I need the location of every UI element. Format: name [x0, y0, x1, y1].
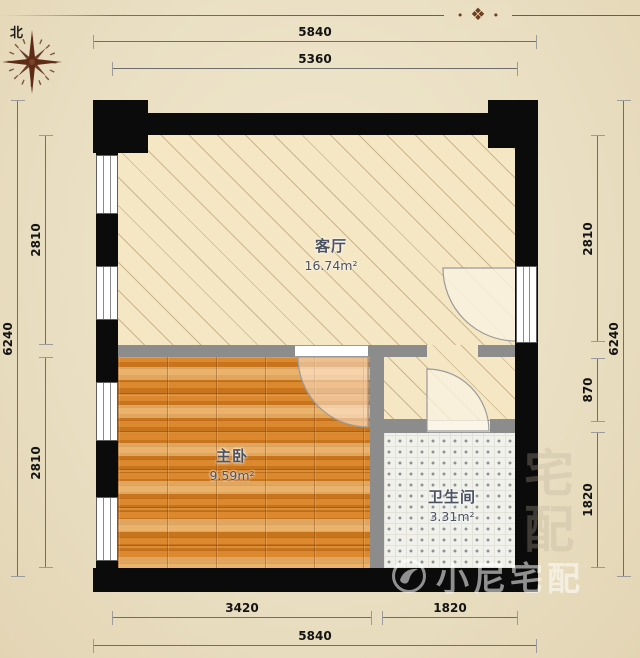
dim-value: 2810 — [29, 446, 43, 479]
dim-value: 6240 — [1, 322, 15, 355]
dim-bottom-bedroom: 3420 — [112, 617, 372, 618]
watermark-ghost: 宅配 — [524, 446, 588, 558]
room-area: 3.31m² — [402, 509, 502, 524]
watermark-text: 小尼宅配 — [436, 552, 584, 600]
interior-wall — [490, 419, 515, 433]
bedroom-label: 主卧 9.59m² — [182, 445, 282, 483]
ornament-dot-left: • — [457, 10, 464, 21]
window-icon — [96, 266, 118, 320]
room-name: 客厅 — [281, 235, 381, 256]
living-room-label: 客厅 16.74m² — [281, 235, 381, 273]
interior-wall — [478, 345, 515, 357]
dim-value: 5840 — [298, 629, 331, 643]
room-area: 9.59m² — [182, 468, 282, 483]
ornament-icon: • ❖ • — [444, 3, 512, 28]
top-border-line — [0, 15, 640, 16]
dim-left-outer: 6240 — [17, 100, 18, 577]
dim-right-middle: 870 — [597, 358, 598, 422]
dim-value: 5840 — [298, 25, 331, 39]
bathroom-door-threshold — [427, 420, 490, 433]
interior-wall — [370, 345, 384, 570]
room-area: 16.74m² — [281, 258, 381, 273]
dim-top-outer: 5840 — [93, 41, 537, 42]
dim-right-upper: 2810 — [597, 135, 598, 342]
dim-value: 6240 — [607, 322, 621, 355]
watermark-logo-icon — [390, 557, 428, 595]
exterior-wall-top — [148, 113, 488, 135]
dim-bottom-outer: 5840 — [93, 645, 537, 646]
room-name: 主卧 — [182, 445, 282, 466]
compass-rose-icon: 北 — [2, 24, 66, 94]
floorplan-page: • ❖ • 北 — [0, 0, 640, 658]
dim-value: 2810 — [581, 222, 595, 255]
room-name: 卫生间 — [402, 486, 502, 507]
dim-top-inner: 5360 — [112, 68, 518, 69]
dim-value: 870 — [581, 377, 595, 402]
dim-left-lower: 2810 — [45, 357, 46, 568]
ornament-dot-right: • — [493, 10, 500, 21]
dim-left-upper: 2810 — [45, 135, 46, 345]
dim-value: 3420 — [225, 601, 258, 615]
interior-wall — [384, 419, 427, 433]
window-icon — [96, 155, 118, 214]
corridor-floor — [372, 345, 517, 425]
corner-column — [93, 100, 148, 153]
dim-bottom-bathroom: 1820 — [382, 617, 518, 618]
dim-value: 1820 — [433, 601, 466, 615]
corner-column — [488, 100, 538, 148]
dim-right-outer: 6240 — [623, 100, 624, 577]
window-icon — [96, 497, 118, 561]
window-icon — [96, 382, 118, 441]
dim-right-lower: 1820 — [597, 432, 598, 568]
dim-value: 2810 — [29, 223, 43, 256]
interior-wall — [112, 345, 295, 357]
watermark: 小尼宅配 — [390, 552, 584, 600]
entry-door-leaf-icon — [516, 266, 537, 343]
north-label: 北 — [10, 22, 23, 41]
fleuron-icon: ❖ — [470, 7, 485, 24]
bedroom-door-threshold — [295, 345, 368, 357]
dim-value: 5360 — [298, 52, 331, 66]
bathroom-label: 卫生间 3.31m² — [402, 486, 502, 524]
